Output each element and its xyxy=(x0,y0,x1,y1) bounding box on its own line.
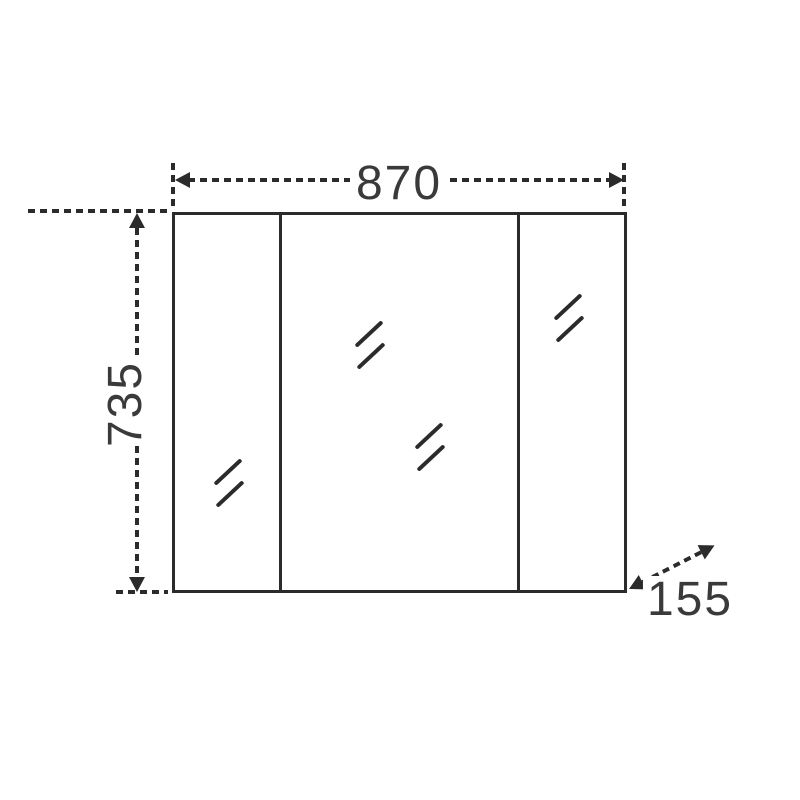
depth-arrow-right-icon xyxy=(698,538,719,559)
depth-dimension-label: 155 xyxy=(643,576,737,624)
mirror-shine-icon xyxy=(352,324,386,376)
width-arrow-right-icon xyxy=(609,172,624,188)
width-dimension-line-right xyxy=(450,178,612,182)
mirror-shine-icon xyxy=(412,426,446,478)
shine-line xyxy=(213,458,242,485)
door-divider-right xyxy=(517,215,520,590)
width-dimension-line-left xyxy=(188,178,350,182)
height-dimension-line-lower xyxy=(135,446,139,578)
mirror-shine-icon xyxy=(211,462,245,514)
height-arrow-down-icon xyxy=(129,577,145,592)
shine-line xyxy=(354,320,383,347)
height-extension-line-top xyxy=(28,209,172,213)
cabinet-outline xyxy=(172,212,627,593)
shine-line xyxy=(215,480,244,507)
drawing-canvas: 870 735 155 xyxy=(0,0,800,800)
shine-line xyxy=(356,342,385,369)
shine-line xyxy=(555,315,584,342)
height-arrow-up-icon xyxy=(129,213,145,228)
shine-line xyxy=(414,422,443,449)
height-dimension-label: 735 xyxy=(102,357,150,451)
width-dimension-label: 870 xyxy=(352,160,446,208)
height-dimension-line-upper xyxy=(135,228,139,362)
mirror-shine-icon xyxy=(551,297,585,349)
door-divider-left xyxy=(279,215,282,590)
shine-line xyxy=(416,444,445,471)
shine-line xyxy=(553,293,582,320)
